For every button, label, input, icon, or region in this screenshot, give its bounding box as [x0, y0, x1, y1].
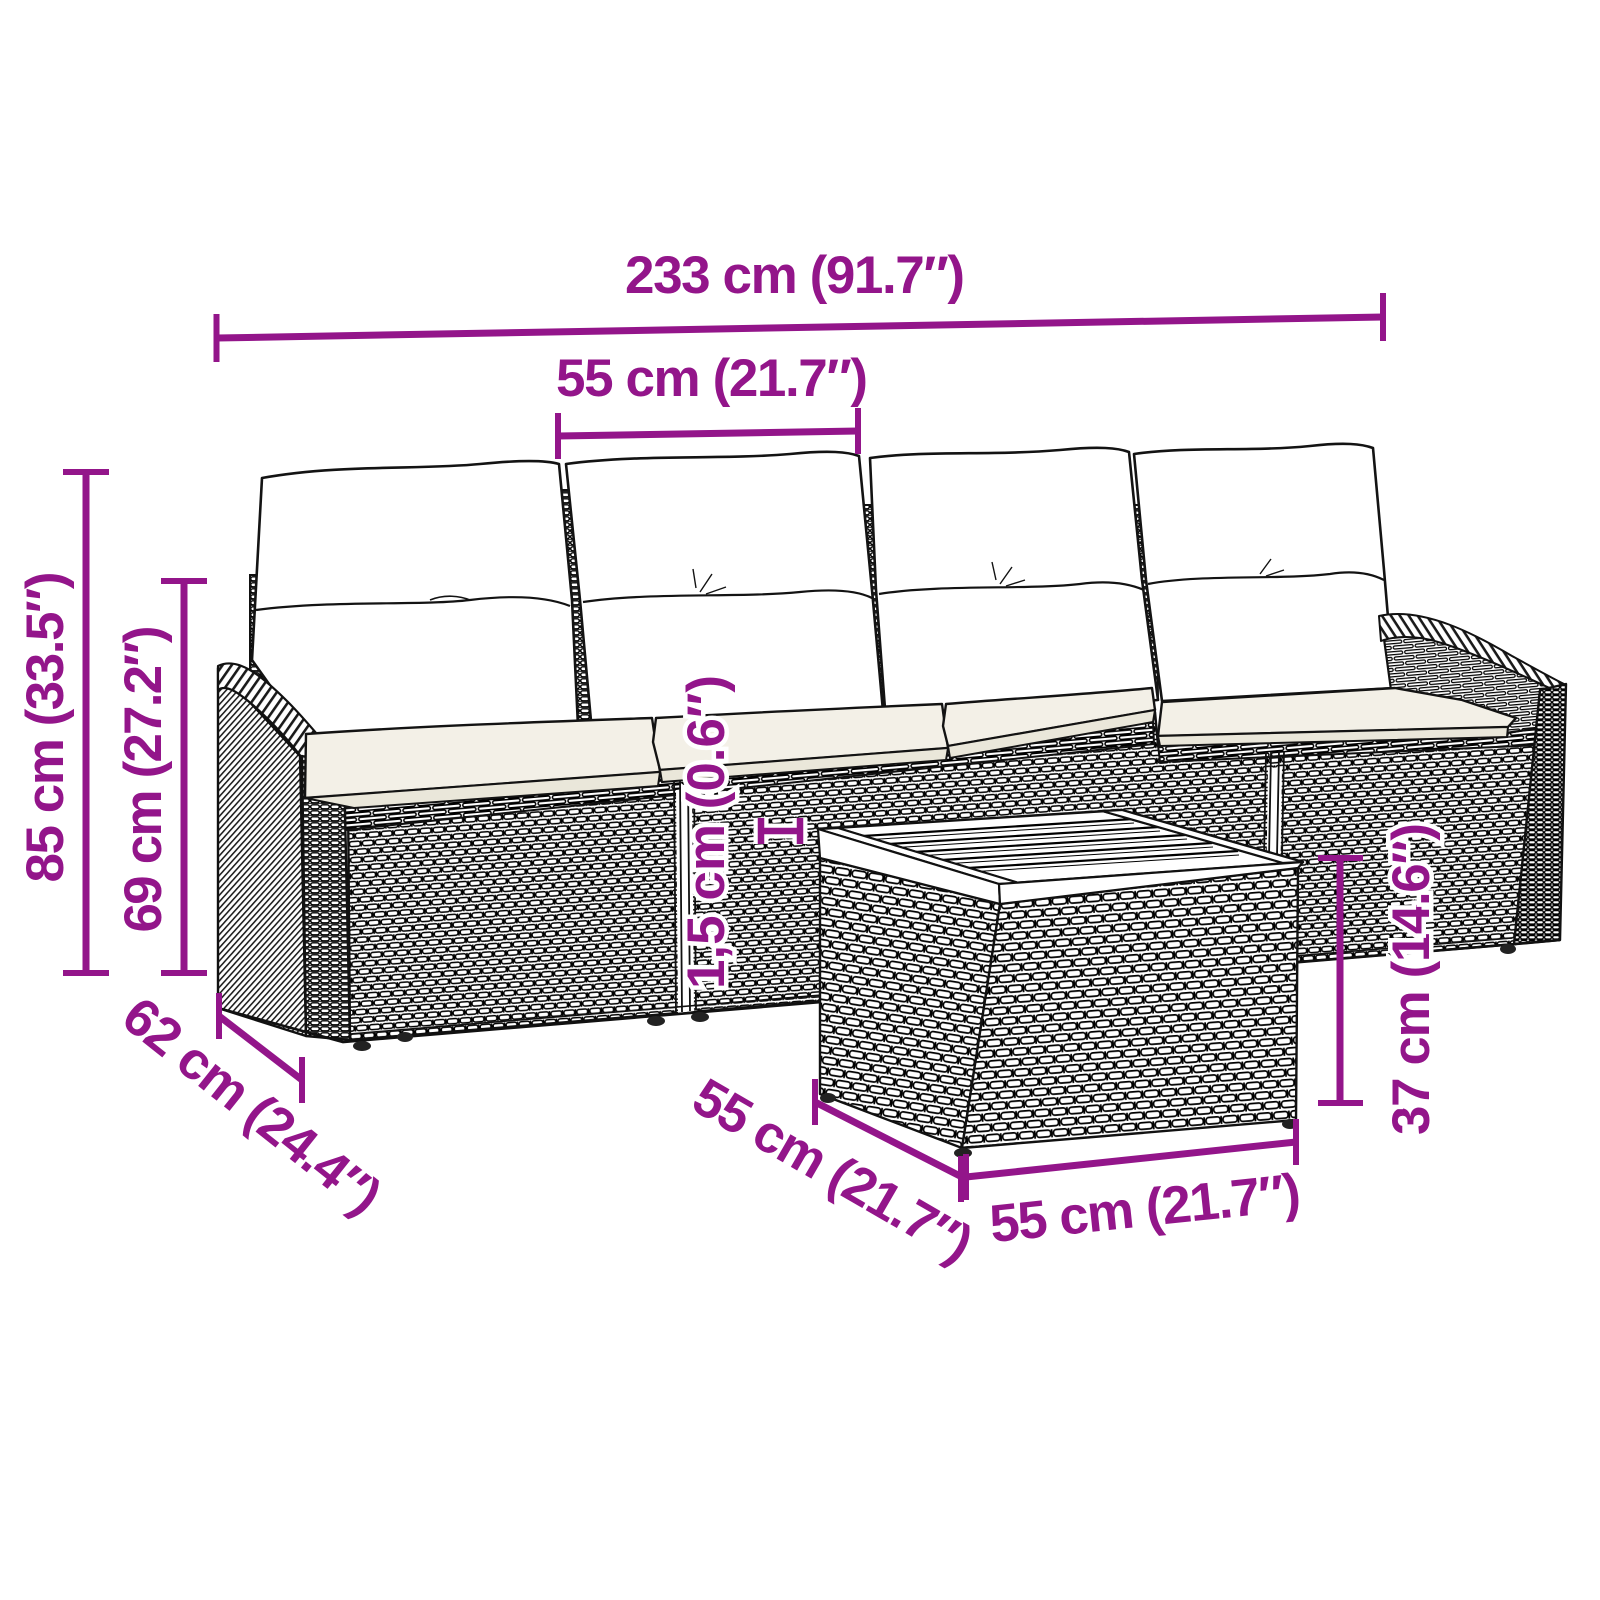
svg-text:55 cm (21.7″): 55 cm (21.7″)	[556, 349, 868, 408]
svg-text:37 cm (14.6″): 37 cm (14.6″)	[1382, 823, 1441, 1135]
svg-text:85 cm (33.5″): 85 cm (33.5″)	[16, 572, 75, 883]
svg-text:1,5 cm (0.6″): 1,5 cm (0.6″)	[677, 675, 736, 989]
svg-text:233 cm (91.7″): 233 cm (91.7″)	[625, 246, 965, 305]
svg-text:69 cm (27.2″): 69 cm (27.2″)	[114, 626, 173, 933]
